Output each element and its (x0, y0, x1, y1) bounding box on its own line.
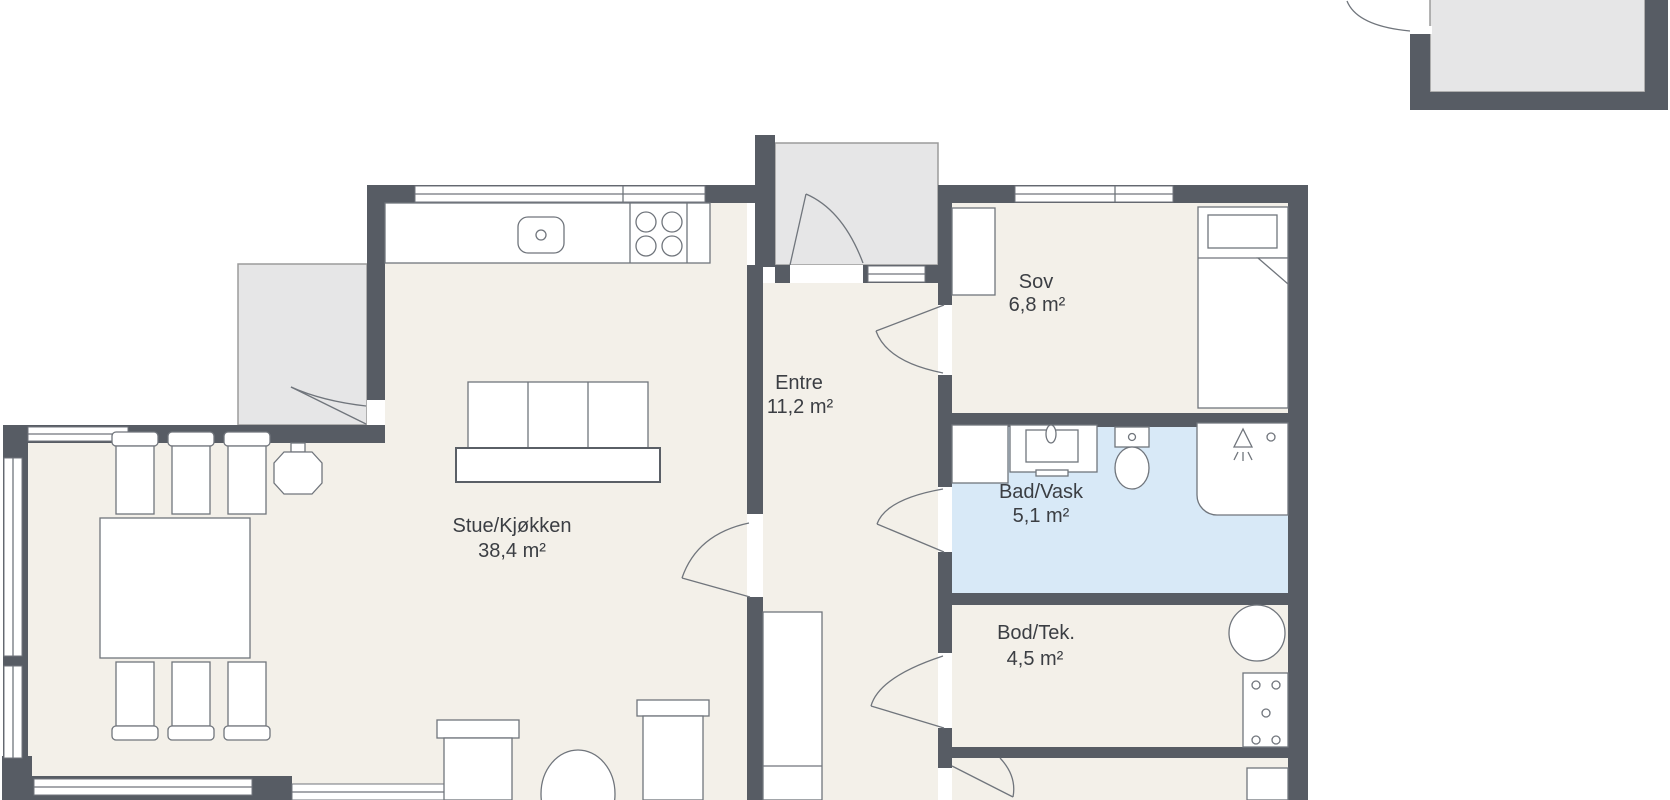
label-entre-area: 11,2 m² (767, 396, 834, 418)
dining-table (100, 518, 250, 658)
label-bod-area: 4,5 m² (1007, 648, 1064, 670)
bathroom-sink-icon (1010, 425, 1097, 476)
dining-group (100, 432, 270, 740)
floor-plan-page: Stue/Kjøkken 38,4 m² Entre 11,2 m² Sov 6… (0, 0, 1670, 800)
annex-door (1347, 1, 1410, 31)
floor-plan: Stue/Kjøkken 38,4 m² Entre 11,2 m² Sov 6… (0, 0, 1670, 800)
pillow (1208, 215, 1277, 248)
dining-chair (112, 662, 158, 740)
annex-door-opening (1408, 26, 1432, 34)
shower-icon (1197, 423, 1288, 515)
label-bad-area: 5,1 m² (1013, 505, 1070, 527)
label-entre-name: Entre (775, 372, 823, 394)
sofa (456, 382, 660, 482)
armchair (437, 720, 519, 800)
dining-chair (112, 432, 158, 514)
kitchen (385, 203, 710, 263)
label-sov-area: 6,8 m² (1009, 294, 1066, 316)
west-wall-window-1 (4, 458, 22, 656)
dining-chair (168, 432, 214, 514)
dining-chair (168, 662, 214, 740)
washing-machine-icon (952, 425, 1008, 483)
closet (952, 208, 995, 295)
terrace (238, 264, 367, 425)
electrical-panel-icon (1243, 673, 1288, 747)
label-sov-name: Sov (1019, 271, 1053, 293)
bed (1198, 207, 1288, 408)
room-south-floor (952, 758, 1288, 800)
label-bad-name: Bad/Vask (999, 481, 1084, 503)
west-wall-window-2 (4, 666, 22, 758)
kitchen-window (415, 186, 705, 202)
dining-chair (224, 432, 270, 514)
cabinet (1247, 768, 1288, 800)
label-stue-area: 38,4 m² (478, 540, 546, 562)
label-stue-name: Stue/Kjøkken (453, 515, 572, 537)
annex-porch (1430, 0, 1645, 92)
toilet-icon (1115, 427, 1149, 489)
entry-sidelight-window (790, 265, 925, 283)
dining-chair (224, 662, 270, 740)
terrace-door-opening (367, 400, 385, 425)
water-heater-icon (1229, 605, 1285, 661)
sov-window (1015, 186, 1173, 202)
entre-wardrobe (763, 612, 822, 800)
label-bod-name: Bod/Tek. (997, 622, 1075, 644)
armchair (637, 700, 709, 800)
